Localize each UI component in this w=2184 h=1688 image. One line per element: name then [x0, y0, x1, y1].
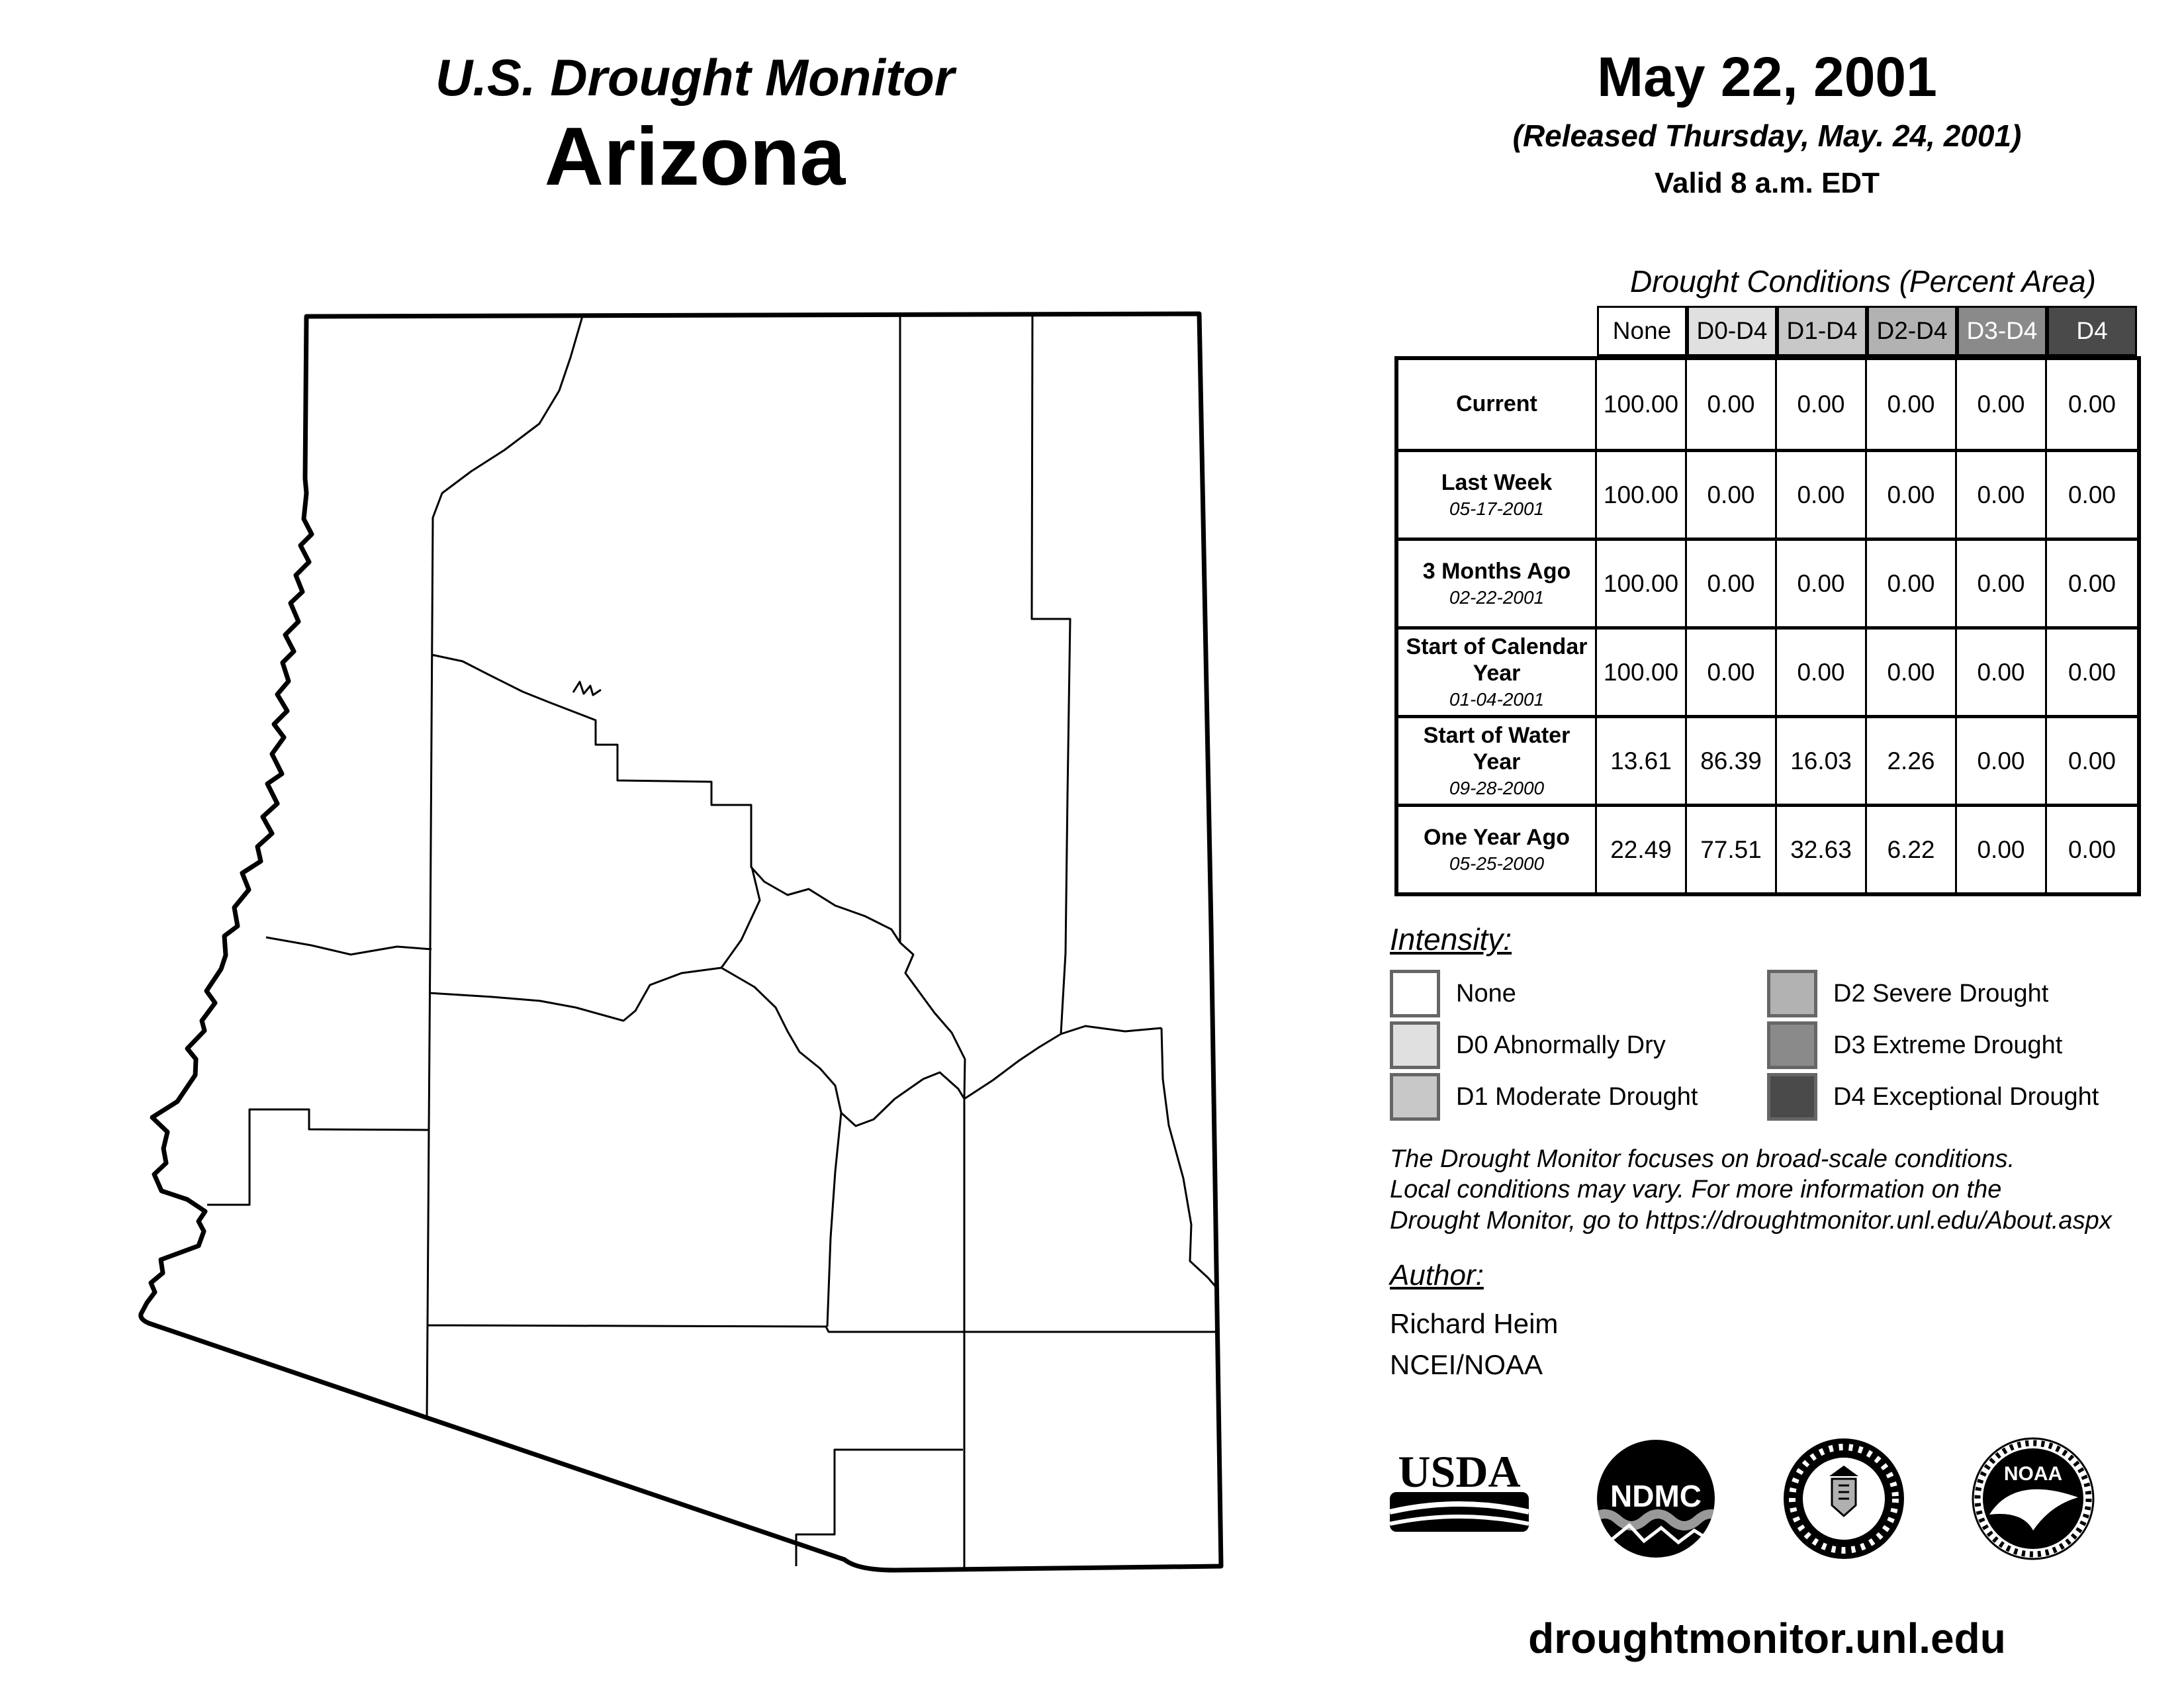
legend-swatch-d1	[1390, 1073, 1440, 1121]
legend-label: D1 Moderate Drought	[1456, 1083, 1698, 1111]
disclaimer-line: The Drought Monitor focuses on broad-sca…	[1390, 1144, 2158, 1174]
row-label-text: Start of Calendar Year	[1398, 634, 1595, 686]
valid-time: Valid 8 a.m. EDT	[1390, 167, 2144, 200]
cell-value: 100.00	[1604, 481, 1678, 509]
table-cell: 0.00	[1867, 538, 1957, 626]
row-label-text: Last Week	[1437, 470, 1557, 496]
cell-value: 6.22	[1887, 836, 1934, 864]
legend-label: D4 Exceptional Drought	[1833, 1083, 2099, 1111]
table-cell: 100.00	[1597, 360, 1687, 449]
table-cell: 0.00	[2047, 449, 2137, 538]
cell-value: 16.03	[1790, 747, 1852, 775]
table-cell: 100.00	[1597, 538, 1687, 626]
department-of-commerce-seal-icon	[1782, 1436, 1906, 1561]
row-label-text: 3 Months Ago	[1419, 559, 1575, 585]
cell-value: 0.00	[1977, 747, 2025, 775]
row-label-text: Current	[1452, 391, 1541, 417]
table-cell: 0.00	[2047, 360, 2137, 449]
table-header-row: None D0-D4 D1-D4 D2-D4 D3-D4 D4	[1597, 306, 2137, 356]
table-cell: 0.00	[1777, 538, 1867, 626]
cell-value: 0.00	[2068, 391, 2116, 418]
table-cell: 0.00	[1957, 804, 2047, 892]
cell-value: 0.00	[1887, 570, 1934, 598]
usda-logo-icon: USDA	[1390, 1451, 1529, 1534]
row-label-text: One Year Ago	[1420, 825, 1574, 851]
row-label-text: Start of Water Year	[1398, 723, 1595, 774]
legend-swatch-d4	[1767, 1073, 1817, 1121]
cell-value: 0.00	[1977, 391, 2025, 418]
table-cell: 22.49	[1597, 804, 1687, 892]
legend-item-d2: D2 Severe Drought	[1767, 968, 2158, 1019]
footer-url: droughtmonitor.unl.edu	[1390, 1614, 2144, 1663]
cell-value: 2.26	[1887, 747, 1934, 775]
legend-swatch-none	[1390, 970, 1440, 1017]
table-cell: 6.22	[1867, 804, 1957, 892]
cell-value: 77.51	[1700, 836, 1762, 864]
row-date: 05-17-2001	[1449, 498, 1544, 520]
table-cell: 0.00	[1777, 626, 1867, 715]
row-label-start-of-calendar-year: Start of Calendar Year 01-04-2001	[1398, 626, 1597, 715]
drought-conditions-table: Current 100.00 0.00 0.00 0.00 0.00 0.00 …	[1394, 356, 2141, 896]
table-cell: 0.00	[1957, 538, 2047, 626]
legend-label: D2 Severe Drought	[1833, 980, 2048, 1008]
cell-value: 0.00	[2068, 836, 2116, 864]
author-organization: NCEI/NOAA	[1390, 1349, 1543, 1381]
table-cell: 0.00	[1867, 626, 1957, 715]
cell-value: 0.00	[2068, 570, 2116, 598]
legend-item-d1: D1 Moderate Drought	[1390, 1071, 1760, 1123]
table-cell: 0.00	[2047, 626, 2137, 715]
cell-value: 0.00	[1707, 570, 1754, 598]
cell-value: 0.00	[2068, 481, 2116, 509]
svg-text:USDA: USDA	[1398, 1451, 1520, 1497]
cell-value: 0.00	[1977, 570, 2025, 598]
cell-value: 0.00	[1707, 391, 1754, 418]
legend-swatch-d0	[1390, 1021, 1440, 1069]
author-name: Richard Heim	[1390, 1308, 1558, 1340]
cell-value: 0.00	[1797, 391, 1844, 418]
table-cell: 0.00	[1687, 360, 1777, 449]
column-header-d2d4: D2-D4	[1867, 306, 1957, 356]
table-cell: 0.00	[1957, 715, 2047, 804]
table-cell: 0.00	[2047, 715, 2137, 804]
noaa-text: NOAA	[2004, 1463, 2062, 1485]
legend-column-left: None D0 Abnormally Dry D1 Moderate Droug…	[1390, 968, 1760, 1123]
cell-value: 0.00	[1797, 659, 1844, 686]
cell-value: 100.00	[1604, 659, 1678, 686]
date-block: May 22, 2001 (Released Thursday, May. 24…	[1390, 48, 2144, 200]
cell-value: 0.00	[1887, 659, 1934, 686]
table-cell: 0.00	[1957, 626, 2047, 715]
table-cell: 100.00	[1597, 449, 1687, 538]
column-header-d0d4: D0-D4	[1687, 306, 1777, 356]
table-cell: 0.00	[1867, 449, 1957, 538]
cell-value: 100.00	[1604, 570, 1678, 598]
table-cell: 32.63	[1777, 804, 1867, 892]
column-header-d1d4: D1-D4	[1777, 306, 1867, 356]
legend-item-d3: D3 Extreme Drought	[1767, 1019, 2158, 1071]
ndmc-logo-icon: NDMC	[1595, 1438, 1717, 1560]
table-cell: 0.00	[1957, 449, 2047, 538]
row-label-current: Current	[1398, 360, 1597, 449]
disclaimer-text: The Drought Monitor focuses on broad-sca…	[1390, 1144, 2158, 1236]
svg-text:NDMC: NDMC	[1610, 1479, 1702, 1513]
cell-value: 32.63	[1790, 836, 1852, 864]
row-label-3-months-ago: 3 Months Ago 02-22-2001	[1398, 538, 1597, 626]
legend-swatch-d3	[1767, 1021, 1817, 1069]
row-label-last-week: Last Week 05-17-2001	[1398, 449, 1597, 538]
legend-item-d0: D0 Abnormally Dry	[1390, 1019, 1760, 1071]
table-cell: 13.61	[1597, 715, 1687, 804]
column-header-d3d4: D3-D4	[1957, 306, 2047, 356]
page-title: U.S. Drought Monitor	[232, 50, 1158, 107]
cell-value: 86.39	[1700, 747, 1762, 775]
legend-item-none: None	[1390, 968, 1760, 1019]
table-cell: 2.26	[1867, 715, 1957, 804]
row-date: 09-28-2000	[1449, 778, 1544, 799]
table-cell: 0.00	[1777, 449, 1867, 538]
cell-value: 0.00	[1797, 481, 1844, 509]
cell-value: 100.00	[1604, 391, 1678, 418]
row-label-start-of-water-year: Start of Water Year 09-28-2000	[1398, 715, 1597, 804]
released-date: (Released Thursday, May. 24, 2001)	[1390, 118, 2144, 154]
legend-swatch-d2	[1767, 970, 1817, 1017]
legend-title: Intensity:	[1390, 921, 1512, 957]
table-cell: 0.00	[1957, 360, 2047, 449]
table-cell: 100.00	[1597, 626, 1687, 715]
author-title: Author:	[1390, 1259, 1484, 1292]
table-cell: 77.51	[1687, 804, 1777, 892]
cell-value: 0.00	[2068, 747, 2116, 775]
column-header-d4: D4	[2047, 306, 2137, 356]
table-title: Drought Conditions (Percent Area)	[1590, 263, 2136, 299]
noaa-logo-icon: NOAA	[1971, 1436, 2095, 1561]
cell-value: 0.00	[2068, 659, 2116, 686]
cell-value: 0.00	[1887, 391, 1934, 418]
disclaimer-line: Drought Monitor, go to https://droughtmo…	[1390, 1205, 2158, 1236]
table-cell: 0.00	[2047, 804, 2137, 892]
cell-value: 0.00	[1977, 836, 2025, 864]
legend-label: D3 Extreme Drought	[1833, 1031, 2062, 1060]
disclaimer-line: Local conditions may vary. For more info…	[1390, 1174, 2158, 1205]
table-cell: 0.00	[2047, 538, 2137, 626]
cell-value: 0.00	[1707, 481, 1754, 509]
map-date: May 22, 2001	[1390, 48, 2144, 106]
column-header-none: None	[1597, 306, 1687, 356]
cell-value: 0.00	[1977, 659, 2025, 686]
cell-value: 0.00	[1977, 481, 2025, 509]
legend-item-d4: D4 Exceptional Drought	[1767, 1071, 2158, 1123]
row-date: 05-25-2000	[1449, 853, 1544, 874]
cell-value: 0.00	[1707, 659, 1754, 686]
legend-label: None	[1456, 980, 1516, 1008]
row-label-one-year-ago: One Year Ago 05-25-2000	[1398, 804, 1597, 892]
title-block: U.S. Drought Monitor Arizona	[232, 50, 1158, 202]
cell-value: 0.00	[1797, 570, 1844, 598]
cell-value: 0.00	[1887, 481, 1934, 509]
state-outline	[141, 314, 1221, 1570]
row-date: 01-04-2001	[1449, 689, 1544, 710]
row-date: 02-22-2001	[1449, 587, 1544, 608]
cell-value: 13.61	[1610, 747, 1672, 775]
table-cell: 16.03	[1777, 715, 1867, 804]
cell-value: 22.49	[1610, 836, 1672, 864]
table-cell: 0.00	[1687, 626, 1777, 715]
table-cell: 86.39	[1687, 715, 1777, 804]
table-cell: 0.00	[1777, 360, 1867, 449]
state-name-title: Arizona	[232, 112, 1158, 202]
table-cell: 0.00	[1687, 449, 1777, 538]
legend-label: D0 Abnormally Dry	[1456, 1031, 1666, 1060]
legend-column-right: D2 Severe Drought D3 Extreme Drought D4 …	[1767, 968, 2158, 1123]
table-cell: 0.00	[1867, 360, 1957, 449]
drought-monitor-report: { "header": { "title": "U.S. Drought Mon…	[0, 0, 2184, 1688]
table-cell: 0.00	[1687, 538, 1777, 626]
